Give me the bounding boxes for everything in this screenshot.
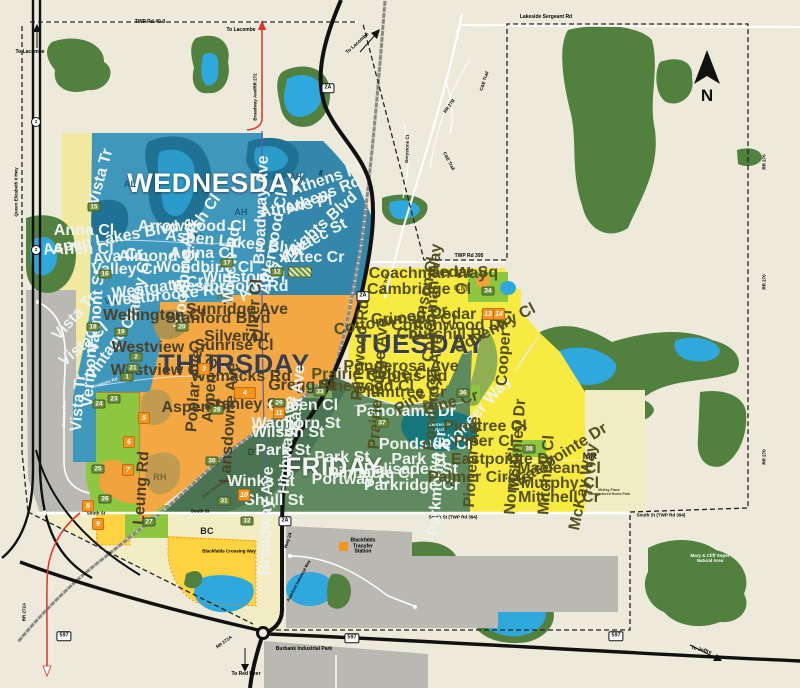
road-label: South St (TWP Rd 394): [637, 512, 686, 517]
street-label: Leung Rd: [130, 451, 153, 526]
zone-marker-green: 34: [482, 287, 495, 296]
highway-shield: 2A: [356, 291, 369, 301]
road-label: TWP Rd 395: [455, 254, 484, 260]
road-label: Blackfalds Transfer Station: [350, 539, 375, 556]
highway-shield: 2: [31, 245, 41, 255]
zone-marker-green: 28: [211, 406, 224, 415]
road-label: Broadway Ave/RR 272: [252, 73, 257, 120]
road-label: Queen Elizabeth II Hwy: [13, 167, 18, 216]
road-label: Greystone Ct: [404, 135, 410, 163]
zone-marker-green: 32: [241, 517, 254, 526]
zone-marker-green: 24: [93, 400, 106, 409]
zone-marker-green: 36: [457, 389, 470, 398]
zone-marker-green: 33: [314, 388, 327, 397]
highway-shield: 2A: [321, 83, 334, 93]
zone-marker-green: 17: [221, 259, 234, 268]
zone-marker-orange: 4: [234, 387, 256, 399]
highway-shield: 597: [344, 633, 359, 643]
highway-shield: 2: [31, 117, 41, 127]
zone-marker-green: 19: [115, 328, 128, 337]
road-label: C&E Trail: [479, 71, 490, 92]
highway-shield: 597: [608, 631, 623, 641]
street-label: Broadway Ave: [256, 466, 278, 576]
zone-marker-green: 1: [121, 373, 134, 382]
road-label: To Lacombe: [345, 32, 370, 56]
zone-marker-orange: 14: [493, 308, 505, 320]
road-label: Burbank Industrial Park: [276, 647, 332, 653]
road-label: To Red Deer: [231, 672, 260, 678]
transfer-station-icon: [339, 542, 348, 551]
area-code-label: RH: [153, 472, 167, 482]
road-label: Blackfalds Crossing Way: [202, 548, 256, 553]
zone-marker-green: 37: [376, 419, 389, 428]
street-label: Cooper Cl: [493, 309, 516, 387]
zone-marker-orange: 6: [123, 436, 135, 448]
zone-marker-green: 26: [99, 495, 112, 504]
zone-marker-orange: 8: [82, 500, 94, 512]
road-label: Lakeside Sergeant Rd: [520, 15, 572, 21]
zone-marker-green: 23: [108, 395, 121, 404]
zone-marker-green: 38: [523, 445, 536, 454]
label-layer: WEDNESDAYTHURSDAYTUESDAYFRIDAYALALAHAHVR…: [0, 0, 800, 688]
road-label: To Lacombe: [15, 50, 44, 56]
street-label: Portway Cl: [312, 471, 395, 489]
area-code-label: BC: [200, 526, 214, 536]
area-code-label: AH: [234, 207, 248, 217]
road-label: Duncan Ave: [61, 401, 67, 427]
road-label: C&E Trail: [442, 151, 456, 171]
zone-marker-green: 15: [88, 203, 101, 212]
road-label: RR 270: [761, 449, 766, 464]
area-code-label: AL: [124, 179, 137, 189]
collection-schedule-map: WEDNESDAYTHURSDAYTUESDAYFRIDAYALALAHAHVR…: [0, 0, 800, 688]
road-label: RR 27B: [442, 98, 455, 114]
road-label: South St: [43, 510, 62, 515]
street-label: Piper Cl: [454, 433, 514, 451]
road-label: Mary & Cliff Soper Natural Area: [690, 553, 729, 563]
road-label: RR 272A: [21, 603, 26, 622]
road-label: TWP Rd 40-0: [135, 20, 165, 26]
zone-marker-orange: 5: [138, 412, 150, 424]
road-label: RR 270: [761, 274, 766, 289]
zone-marker-orange: 10: [238, 489, 250, 501]
north-label: N: [701, 86, 713, 106]
street-label: Vista Tr: [85, 147, 117, 207]
zone-marker-green: 21: [127, 364, 140, 373]
highway-shield: 597: [56, 631, 71, 641]
zone-marker-green: 16: [99, 270, 112, 279]
road-label: Hwy 2A: [283, 531, 293, 548]
zone-marker-orange: 7: [122, 464, 134, 476]
zone-marker-green: 30: [206, 457, 219, 466]
zone-marker-green: 12: [271, 268, 284, 277]
road-label: South St: [191, 508, 210, 513]
road-label: RR 270: [761, 154, 766, 169]
zone-marker-green: 18: [87, 323, 100, 332]
zone-marker-green: 27: [143, 518, 156, 527]
zone-marker-green: 20: [176, 323, 189, 332]
zone-marker-hatched: [288, 267, 312, 278]
zone-marker-green: 2: [130, 353, 143, 362]
zone-marker-orange: 3: [198, 363, 210, 375]
zone-marker-green: 31: [218, 497, 231, 506]
road-label: To Joffre: [690, 646, 712, 657]
street-label: Broadway Ave: [251, 155, 273, 265]
road-label: RR 272A: [215, 635, 233, 650]
road-label: To Lacombe: [226, 28, 255, 34]
zone-marker-green: 25: [92, 465, 105, 474]
road-label: Aspelund Industrial Way: [286, 559, 312, 602]
zone-marker-orange: 11: [273, 407, 285, 419]
highway-shield: 2A: [278, 516, 291, 526]
zone-marker-orange: 9: [92, 518, 104, 530]
